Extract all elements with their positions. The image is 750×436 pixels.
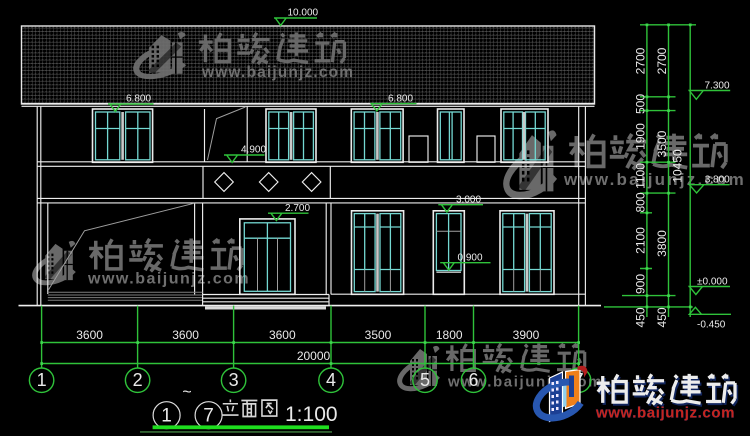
svg-text:5: 5 xyxy=(420,370,430,390)
svg-text:1900: 1900 xyxy=(634,123,648,150)
svg-text:1100: 1100 xyxy=(634,163,648,189)
svg-text:1: 1 xyxy=(161,406,172,427)
svg-text:6.800: 6.800 xyxy=(126,94,151,105)
svg-text:450: 450 xyxy=(634,307,648,327)
svg-text:~: ~ xyxy=(182,384,191,401)
svg-text:7: 7 xyxy=(203,406,214,427)
svg-text:2100: 2100 xyxy=(634,227,648,254)
svg-text:www.baijunjz.com: www.baijunjz.com xyxy=(201,64,354,81)
svg-text:-0.450: -0.450 xyxy=(697,320,726,331)
svg-text:900: 900 xyxy=(634,274,648,294)
svg-text:3800: 3800 xyxy=(655,230,669,257)
svg-text:10.000: 10.000 xyxy=(288,8,319,19)
svg-text:2700: 2700 xyxy=(655,47,669,74)
svg-text:500: 500 xyxy=(634,94,648,114)
svg-text:10450: 10450 xyxy=(671,149,685,183)
svg-text:800: 800 xyxy=(634,192,648,212)
svg-text:3.000: 3.000 xyxy=(456,195,481,206)
svg-text:3: 3 xyxy=(229,370,239,390)
svg-text:6.800: 6.800 xyxy=(388,94,413,105)
svg-text:3.800: 3.800 xyxy=(705,175,730,186)
svg-text:3600: 3600 xyxy=(76,328,103,342)
svg-text:6: 6 xyxy=(468,370,478,390)
svg-text:www.baijunjz.com: www.baijunjz.com xyxy=(87,271,250,288)
svg-text:2700: 2700 xyxy=(634,47,648,74)
svg-text:±0.000: ±0.000 xyxy=(697,277,728,288)
svg-text:www.baijunjz.com: www.baijunjz.com xyxy=(595,405,735,422)
svg-text:3600: 3600 xyxy=(172,328,199,342)
svg-text:3500: 3500 xyxy=(365,328,392,342)
svg-text:1: 1 xyxy=(37,370,47,390)
svg-text:3900: 3900 xyxy=(513,328,540,342)
svg-text:450: 450 xyxy=(655,307,669,327)
svg-text:4: 4 xyxy=(326,370,336,390)
svg-text:4.900: 4.900 xyxy=(241,145,266,156)
svg-text:20000: 20000 xyxy=(297,349,331,363)
svg-text:1:100: 1:100 xyxy=(285,403,338,426)
svg-text:1800: 1800 xyxy=(436,328,463,342)
svg-text:3500: 3500 xyxy=(655,130,669,157)
svg-text:2: 2 xyxy=(133,370,143,390)
svg-text:3600: 3600 xyxy=(269,328,296,342)
svg-text:7.300: 7.300 xyxy=(705,81,730,92)
svg-text:0.900: 0.900 xyxy=(458,253,483,264)
svg-text:2.700: 2.700 xyxy=(285,203,310,214)
